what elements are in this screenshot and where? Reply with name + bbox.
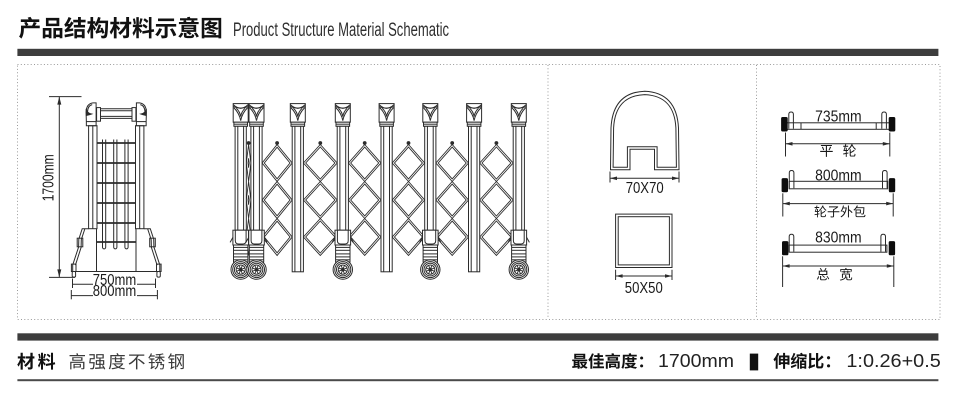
svg-text:830mm: 830mm <box>815 230 862 247</box>
svg-text:50X50: 50X50 <box>625 280 663 297</box>
svg-text:Product Structure Material Sch: Product Structure Material Schematic <box>233 20 449 41</box>
svg-text:1700mm: 1700mm <box>658 351 734 371</box>
svg-text:1700mm: 1700mm <box>41 154 58 201</box>
svg-text:800mm: 800mm <box>93 283 137 300</box>
svg-text:70X70: 70X70 <box>626 180 664 197</box>
svg-text:1:0.26+0.5: 1:0.26+0.5 <box>846 351 940 371</box>
svg-text:800mm: 800mm <box>815 167 862 184</box>
